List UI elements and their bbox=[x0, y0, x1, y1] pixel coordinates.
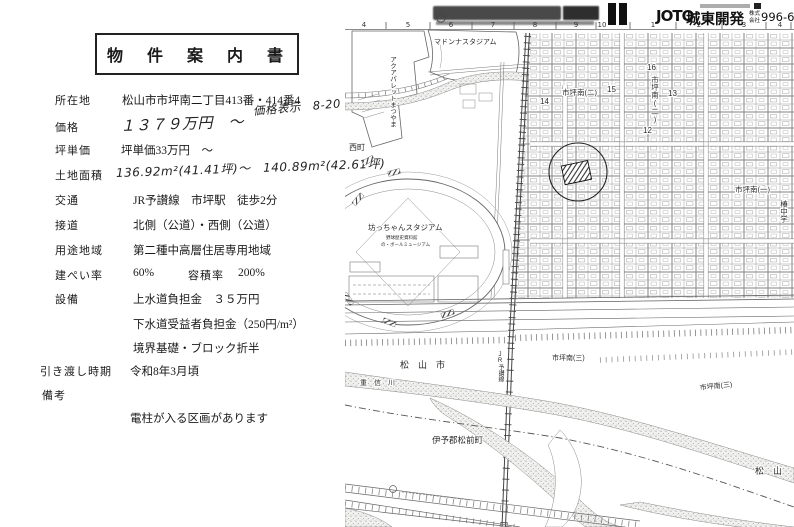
field-label: 接道 bbox=[55, 217, 79, 233]
city-blocks bbox=[505, 33, 794, 299]
map-label-jr-yosan-line: JR予讃線 bbox=[497, 352, 504, 382]
ruler-number: 9 bbox=[574, 21, 578, 29]
company-type-bottom: 会社 bbox=[749, 16, 761, 24]
field-label: 設備 bbox=[55, 291, 79, 307]
field-label: 引き渡し時期 bbox=[40, 363, 112, 379]
field-value: JR予讃線 市坪駅 徒歩2分 bbox=[133, 192, 277, 208]
doc-row-location: 所在地 松山市市坪南二丁目413番・414番4 bbox=[0, 92, 345, 110]
doc-row-remarks: 備考 bbox=[0, 387, 345, 405]
map-label-ichitsubo-minami3-b: 市坪南(三) bbox=[699, 380, 732, 392]
map-label-ichitsubo-minami2-vertical: 市坪南(二) bbox=[650, 75, 659, 124]
doc-row-road-access: 接道 北側（公道）・西側（公道） bbox=[0, 217, 345, 235]
document-title: 物 件 案 内 書 bbox=[107, 42, 287, 66]
map-label-block14: 14 bbox=[540, 97, 549, 106]
doc-row-land-area: 土地面積 136.92m²(41.41坪)～ 140.89m²(42.61坪) bbox=[0, 164, 345, 182]
company-name: 城東開発 bbox=[686, 10, 744, 28]
station-platform bbox=[503, 250, 509, 284]
field-value: 令和8年3月頃 bbox=[130, 363, 199, 379]
field-value-2: 200% bbox=[238, 267, 265, 279]
doc-row-price: 価格 １３７９万円 ～ bbox=[0, 115, 345, 133]
ruler-number: 3 bbox=[742, 21, 746, 29]
ruler-number: 8 bbox=[533, 21, 537, 29]
field-label: 建ぺい率 bbox=[55, 267, 103, 283]
map-label-madonna-stadium: マドンナスタジアム bbox=[434, 37, 497, 46]
map-label-tsubaki-junior-high: 椿中学 bbox=[779, 199, 788, 223]
map-label-block15: 15 bbox=[607, 85, 616, 94]
ruler-number: 4 bbox=[362, 21, 367, 29]
document-title-box: 物 件 案 内 書 bbox=[95, 33, 299, 75]
ruler-number: 10 bbox=[598, 21, 607, 29]
doc-row-sewer-fee: 下水道受益者負担金（250円/m²） bbox=[0, 316, 345, 334]
doc-row-boundary: 境界基礎・ブロック折半 bbox=[0, 340, 345, 358]
map-sheet-marker bbox=[608, 3, 627, 25]
map-label-block16: 16 bbox=[647, 63, 656, 72]
field-value: 第二種中高層住居専用地域 bbox=[133, 242, 271, 258]
doc-row-coverage-ratio: 建ぺい率 60% 容積率 200% bbox=[0, 267, 345, 285]
map-panel: JOTO 城東開発 株式 会社 996-66 4 5 6 7 8 bbox=[345, 0, 794, 527]
phone-icon bbox=[754, 3, 761, 9]
doc-row-zoning: 用途地域 第二種中高層住居専用地域 bbox=[0, 242, 345, 260]
ruler-number: 7 bbox=[491, 21, 495, 29]
ruler-number: 6 bbox=[449, 21, 454, 29]
field-label: 所在地 bbox=[55, 92, 91, 108]
field-value: 下水道受益者負担金（250円/m²） bbox=[133, 316, 304, 332]
ruler-number: 2 bbox=[697, 21, 701, 29]
map-label-block13: 13 bbox=[668, 89, 677, 98]
field-label: 交通 bbox=[55, 192, 79, 208]
shigenobu-river bbox=[345, 372, 794, 527]
map-label-botchan-sub2: の・ボールミュージアム bbox=[381, 241, 431, 248]
field-label: 土地面積 bbox=[55, 167, 103, 183]
map-label-ichitsubo-minami3-a: 市坪南(三) bbox=[552, 353, 585, 362]
ruler-number: 1 bbox=[651, 21, 655, 29]
field-value: 北側（公道）・西側（公道） bbox=[133, 217, 277, 233]
ruler-number: 5 bbox=[406, 21, 410, 29]
doc-row-remarks-value: 電柱が入る区画があります bbox=[0, 410, 345, 428]
map-label-matsuyama-city-2: 松 山 bbox=[755, 465, 782, 476]
small-buildings bbox=[460, 84, 492, 108]
property-flyer-scan: 物 件 案 内 書 価格表示 8-20 所在地 松山市市坪南二丁目413番・41… bbox=[0, 0, 794, 527]
field-value: 60% bbox=[133, 267, 154, 279]
map-label-iyogun-masakicho: 伊予郡松前町 bbox=[432, 435, 484, 445]
map-label-block12: 12 bbox=[643, 126, 652, 135]
field-value: 松山市市坪南二丁目413番・414番4 bbox=[122, 92, 300, 108]
ruler-number: 4 bbox=[778, 21, 783, 29]
map-label-shigenobu-river: 重 信 川 bbox=[360, 378, 395, 387]
company-tagline-illegible bbox=[700, 4, 750, 8]
field-label: 価格 bbox=[55, 119, 79, 135]
field-value: 電柱が入る区画があります bbox=[130, 410, 268, 426]
document-panel: 物 件 案 内 書 価格表示 8-20 所在地 松山市市坪南二丁目413番・41… bbox=[0, 0, 345, 527]
field-label: 備考 bbox=[42, 387, 66, 403]
map-label-botchan-stadium: 坊っちゃんスタジアム bbox=[368, 222, 442, 232]
company-type-top: 株式 bbox=[749, 9, 761, 17]
city-map: JOTO 城東開発 株式 会社 996-66 4 5 6 7 8 bbox=[345, 0, 794, 527]
field-label: 坪単価 bbox=[55, 142, 91, 158]
doc-row-delivery: 引き渡し時期 令和8年3月頃 bbox=[0, 363, 345, 381]
map-label-nishimachi: 西町 bbox=[349, 143, 365, 152]
map-label-ichitsubo-minami1: 市坪南(一) bbox=[735, 184, 770, 194]
doc-row-facilities: 設備 上水道負担金 ３５万円 bbox=[0, 291, 345, 309]
field-label-2: 容積率 bbox=[188, 267, 224, 283]
field-value-handwritten: １３７９万円 ～ bbox=[120, 111, 245, 136]
field-value: 上水道負担金 ３５万円 bbox=[133, 291, 260, 307]
map-label-botchan-sub1: 野球歴史資料館 bbox=[386, 234, 418, 241]
field-value: 坪単価33万円 ～ bbox=[121, 142, 213, 158]
field-value: 境界基礎・ブロック折半 bbox=[133, 340, 260, 356]
map-label-matsuyama-city: 松 山 市 bbox=[400, 359, 445, 370]
field-label: 用途地域 bbox=[55, 242, 103, 258]
doc-row-transport: 交通 JR予讃線 市坪駅 徒歩2分 bbox=[0, 192, 345, 210]
map-label-ichitsubo-minami2: 市坪南(二) bbox=[562, 87, 597, 97]
